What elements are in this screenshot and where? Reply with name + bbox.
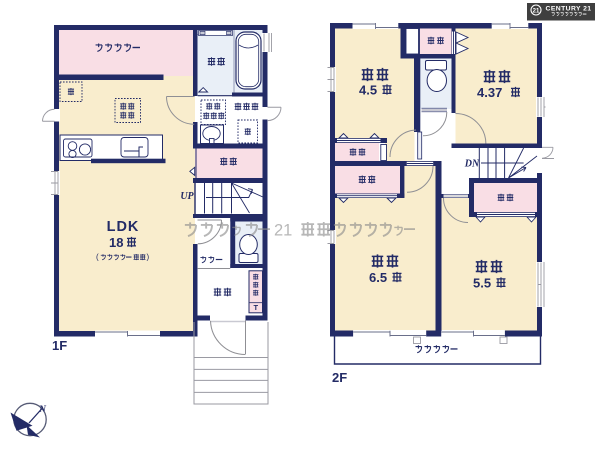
- svg-text:18: 18: [109, 235, 123, 250]
- svg-text:21: 21: [274, 222, 292, 240]
- svg-text:): ): [147, 253, 150, 262]
- svg-text:5.5: 5.5: [473, 276, 491, 291]
- svg-text:1F: 1F: [52, 338, 67, 353]
- svg-text:4.5: 4.5: [359, 83, 377, 98]
- svg-text:UP: UP: [180, 191, 194, 202]
- svg-text:21: 21: [533, 8, 540, 14]
- svg-text:DN: DN: [464, 159, 480, 170]
- svg-text:CENTURY 21: CENTURY 21: [546, 6, 592, 13]
- svg-text:LDK: LDK: [107, 219, 140, 235]
- svg-text:(: (: [96, 253, 99, 262]
- svg-text:N: N: [38, 405, 47, 415]
- svg-text:4.37: 4.37: [477, 85, 502, 100]
- svg-text:T: T: [254, 303, 259, 312]
- svg-text:2F: 2F: [332, 370, 347, 385]
- svg-text:6.5: 6.5: [369, 270, 387, 285]
